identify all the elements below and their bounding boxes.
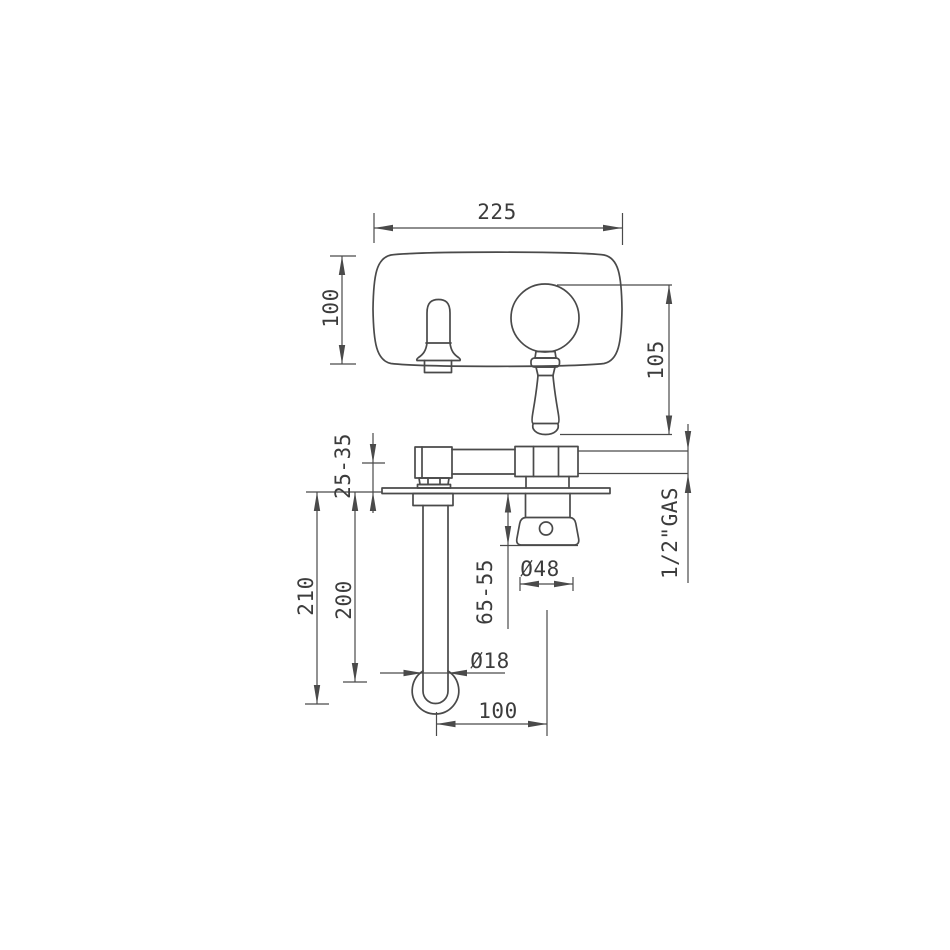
cartridge-walls <box>526 494 571 518</box>
valve-neck-lines <box>526 477 569 489</box>
dim-label-handle-depth: 65-55 <box>473 559 497 625</box>
faucet-technical-drawing: 225 100 105 25-35 210 200 65-55 <box>0 0 950 950</box>
lever-stem <box>532 376 559 424</box>
dim-label-spout-reach: 100 <box>478 699 517 723</box>
mounting-plate-outline <box>373 252 622 366</box>
dim-label-spout-tube-diameter: Ø18 <box>470 649 509 673</box>
dim-label-connection-thread: 1/2"GAS <box>658 487 682 579</box>
spout-bend-inner <box>423 671 448 704</box>
spout-escutcheon <box>413 494 453 506</box>
valve-body-block-lines <box>534 447 559 477</box>
dim-escutcheon-diameter: Ø48 <box>520 557 573 591</box>
dim-plate-height: 100 <box>319 256 356 364</box>
spout-dome <box>427 300 450 344</box>
dim-plate-width: 225 <box>374 200 623 245</box>
lever-end-cap <box>533 424 559 435</box>
dim-spout-tube-diameter: Ø18 <box>380 649 510 676</box>
front-view <box>373 252 622 434</box>
dim-handle-drop: 105 <box>557 285 672 435</box>
bell-set-screw <box>540 522 553 535</box>
dim-label-plate-height: 100 <box>319 288 343 327</box>
valve-body-block <box>515 447 578 477</box>
dim-label-wall-thickness: 25-35 <box>331 433 355 499</box>
spout-union-block <box>415 447 452 478</box>
handle-ball <box>511 284 579 352</box>
dim-label-plate-width: 225 <box>477 200 516 224</box>
lever-ring-3 <box>536 367 555 376</box>
dim-label-spout-drop: 200 <box>332 580 356 619</box>
spout-skirt <box>417 343 461 361</box>
dim-label-spout-total-drop: 210 <box>294 576 318 615</box>
body-tube <box>452 450 515 475</box>
dim-connection-thread: 1/2"GAS <box>578 424 691 583</box>
dim-spout-drop: 200 <box>332 492 367 682</box>
spout-union-nut <box>419 478 449 485</box>
spout-tube-walls <box>423 506 448 672</box>
dim-label-handle-drop: 105 <box>644 340 668 379</box>
dim-label-escutcheon-diameter: Ø48 <box>520 557 559 581</box>
dim-spout-total-drop: 210 <box>294 492 329 704</box>
spout-bend-outer <box>412 671 459 714</box>
technical-drawing-page: 225 100 105 25-35 210 200 65-55 <box>0 0 950 950</box>
